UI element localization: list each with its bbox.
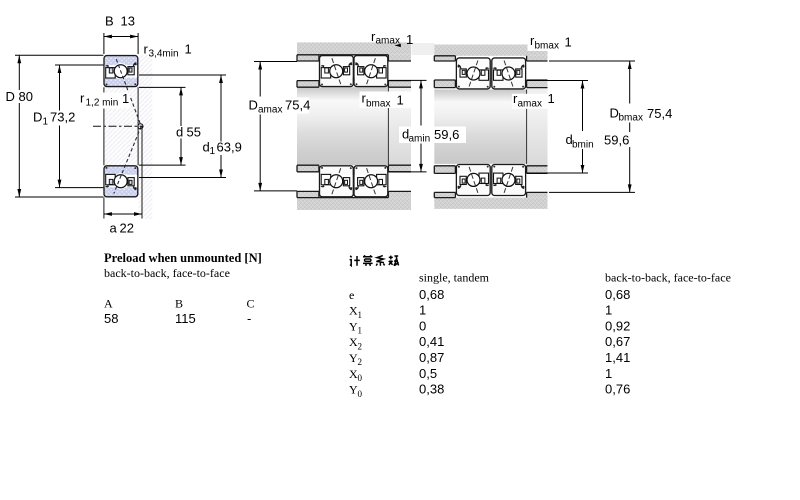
svg-text:0,68: 0,68 <box>605 287 630 302</box>
svg-text:single, tandem: single, tandem <box>419 271 490 285</box>
svg-text:2: 2 <box>358 357 363 367</box>
svg-text:1: 1 <box>358 326 363 336</box>
svg-text:d: d <box>176 125 183 140</box>
svg-text:3,4min: 3,4min <box>149 49 179 60</box>
svg-text:0: 0 <box>358 389 363 399</box>
svg-text:0,67: 0,67 <box>605 334 630 349</box>
svg-text:59,6: 59,6 <box>604 133 629 148</box>
svg-text:Preload when unmounted [N]: Preload when unmounted [N] <box>104 251 262 265</box>
svg-text:59,6: 59,6 <box>434 127 459 142</box>
svg-text:1: 1 <box>605 303 612 318</box>
svg-text:0,68: 0,68 <box>419 287 444 302</box>
svg-text:bmax: bmax <box>619 113 643 124</box>
svg-text:1,2 min: 1,2 min <box>86 98 119 109</box>
svg-text:0,87: 0,87 <box>419 350 444 365</box>
svg-text:-: - <box>247 311 251 326</box>
svg-text:B: B <box>175 297 183 311</box>
svg-text:115: 115 <box>175 311 196 326</box>
svg-text:0,38: 0,38 <box>419 382 444 397</box>
svg-text:1: 1 <box>548 91 555 106</box>
svg-text:22: 22 <box>120 221 134 236</box>
svg-text:75,4: 75,4 <box>647 106 672 121</box>
svg-text:1: 1 <box>565 35 572 50</box>
svg-text:0: 0 <box>419 318 426 333</box>
svg-text:bmin: bmin <box>572 139 594 150</box>
svg-text:C: C <box>247 297 255 311</box>
svg-text:2: 2 <box>358 341 363 351</box>
svg-text:1: 1 <box>185 42 192 57</box>
svg-text:e: e <box>349 288 354 302</box>
svg-text:0,5: 0,5 <box>419 366 437 381</box>
svg-text:1: 1 <box>406 32 413 47</box>
svg-text:D: D <box>33 110 42 125</box>
svg-text:1: 1 <box>358 310 363 320</box>
svg-text:1: 1 <box>605 366 612 381</box>
svg-text:0,92: 0,92 <box>605 318 630 333</box>
svg-text:D: D <box>6 89 15 104</box>
svg-text:75,4: 75,4 <box>285 98 310 113</box>
svg-text:B: B <box>105 14 114 29</box>
svg-text:back-to-back, face-to-face: back-to-back, face-to-face <box>104 266 230 280</box>
svg-text:13: 13 <box>121 14 135 29</box>
svg-text:amax: amax <box>518 98 542 109</box>
svg-text:1: 1 <box>397 92 404 107</box>
svg-text:58: 58 <box>104 311 118 326</box>
svg-text:bmax: bmax <box>535 40 559 51</box>
svg-text:1: 1 <box>43 117 49 128</box>
svg-text:bmax: bmax <box>366 98 390 109</box>
svg-text:55: 55 <box>187 125 201 140</box>
svg-text:0: 0 <box>358 373 363 383</box>
svg-text:D: D <box>249 98 258 113</box>
svg-text:73,2: 73,2 <box>50 110 75 125</box>
svg-text:r: r <box>80 91 85 106</box>
svg-text:amax: amax <box>258 105 282 116</box>
svg-text:63,9: 63,9 <box>217 140 242 155</box>
svg-text:1: 1 <box>122 91 129 106</box>
svg-text:0,41: 0,41 <box>419 334 444 349</box>
svg-text:a: a <box>110 221 118 236</box>
svg-text:1,41: 1,41 <box>605 350 630 365</box>
svg-text:back-to-back, face-to-face: back-to-back, face-to-face <box>605 271 731 285</box>
svg-text:1: 1 <box>210 146 216 157</box>
svg-text:amin: amin <box>409 134 431 145</box>
svg-text:1: 1 <box>419 303 426 318</box>
svg-text:D: D <box>610 106 619 121</box>
svg-text:0,76: 0,76 <box>605 382 630 397</box>
svg-text:80: 80 <box>19 89 33 104</box>
svg-text:A: A <box>104 297 113 311</box>
